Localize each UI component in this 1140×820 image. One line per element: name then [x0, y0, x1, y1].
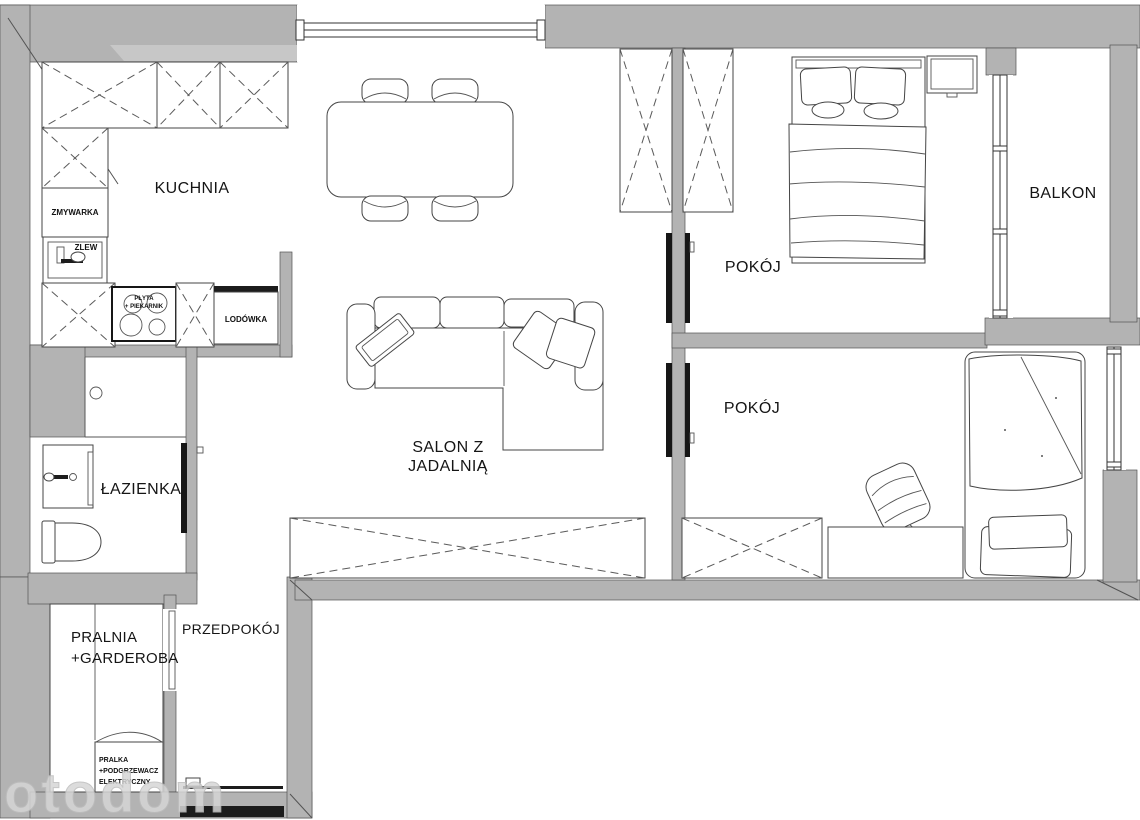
window-balcony-door: [989, 75, 1013, 318]
label-hallway: PRZEDPOKÓJ: [182, 621, 280, 637]
tv-stand: [947, 93, 957, 97]
shower-drain: [90, 387, 102, 399]
bed2-dot1: [1004, 429, 1006, 431]
corner-sofa: [347, 297, 603, 450]
dining-chair-bottom-right: [432, 196, 478, 221]
wall-right-of-fridge: [280, 252, 292, 357]
wall-bathroom-corner-block: [30, 345, 85, 437]
toilet: [42, 521, 101, 563]
label-hob-line2: + PIEKARNIK: [125, 304, 164, 310]
bed1-cushion-left: [812, 102, 844, 118]
bed1-blanket: [789, 124, 926, 259]
bed1-cushion-right: [864, 103, 898, 119]
basin-faucet-head: [44, 473, 54, 481]
dining-set: [327, 79, 513, 221]
label-bedroom1: POKÓJ: [725, 257, 781, 276]
bed1-pillow-left: [800, 67, 852, 106]
label-sink: ZLEW: [75, 243, 98, 252]
label-kitchen: KUCHNIA: [155, 180, 230, 197]
dining-chair-top-right: [432, 79, 478, 104]
bedroom2-window-tick2: [1107, 462, 1121, 467]
label-laundry-line2: +GARDEROBA: [71, 650, 179, 667]
toilet-tank: [42, 521, 55, 563]
wardrobe-living: [290, 518, 645, 578]
cabinet-x-3: [220, 62, 288, 128]
label-dishwasher: ZMYWARKA: [51, 208, 98, 217]
dining-chair-bottom-left: [362, 196, 408, 221]
wall-corridor-right: [287, 577, 312, 818]
label-salon-line2: JADALNIĄ: [408, 458, 488, 475]
cabinet-x-6: [176, 283, 214, 347]
wardrobe-bedroom2: [682, 518, 822, 578]
wardrobe-tall-right: [683, 49, 733, 212]
wall-left-upper: [0, 5, 30, 577]
bedroom1-furniture: [789, 56, 977, 263]
wall-balcony-right: [1110, 45, 1137, 322]
watermark-otodom: otodom: [4, 761, 227, 820]
wall-bedroom2-right: [1103, 470, 1137, 582]
single-bed: [965, 352, 1085, 578]
balcony-window-tick2: [993, 229, 1007, 234]
desk: [828, 527, 963, 578]
wall-top-left-shading: [110, 45, 297, 61]
bed2-pillow-inner: [988, 515, 1067, 550]
window-top: [296, 5, 545, 62]
labels: KUCHNIA SALON Z JADALNIĄ POKÓJ POKÓJ BAL…: [51, 180, 1096, 786]
fridge-handle: [214, 286, 278, 292]
cabinet-x-1: [42, 62, 157, 128]
bed2-dot2: [1041, 455, 1043, 457]
bed2-dot3: [1055, 397, 1057, 399]
cabinet-x-5: [42, 283, 115, 347]
bathroom-door-handle: [197, 447, 203, 453]
washbasin: [43, 445, 93, 508]
kitchen-cabinets: [42, 62, 288, 347]
label-bathroom: ŁAZIENKA: [101, 481, 182, 498]
bedroom1-door-handle: [690, 242, 694, 252]
bedroom2-window-tick1: [1107, 349, 1121, 354]
wall-bottom-main: [295, 580, 1140, 600]
label-balcony: BALKON: [1029, 185, 1096, 202]
balcony-window-tick3: [993, 310, 1007, 316]
wall-balcony-window-block: [986, 48, 1016, 75]
bed1-pillow-right: [854, 67, 906, 106]
dining-chair-top-left: [362, 79, 408, 104]
label-hob-line1: PŁYTA: [134, 296, 154, 302]
wardrobe-tall-left: [620, 49, 672, 212]
bedroom2-furniture: [828, 352, 1085, 578]
sofa-back-cushion-2: [440, 297, 504, 328]
label-laundry-line1: PRALNIA: [71, 629, 137, 646]
cabinet-x-2: [157, 62, 220, 128]
double-bed: [789, 57, 926, 263]
wall-bathroom-right: [186, 345, 197, 580]
window-top-cap-right: [537, 20, 545, 40]
window-top-cap-left: [296, 20, 304, 40]
wall-top-right: [545, 5, 1140, 48]
bed2-blanket: [969, 355, 1082, 490]
label-salon-line1: SALON Z: [412, 439, 483, 456]
floorplan: KUCHNIA SALON Z JADALNIĄ POKÓJ POKÓJ BAL…: [0, 0, 1140, 820]
cabinet-x-4: [42, 128, 108, 188]
wall-bedrooms-divider: [672, 333, 987, 348]
label-fridge: LODÓWKA: [225, 315, 267, 324]
label-bedroom2: POKÓJ: [724, 398, 780, 417]
floorplan-svg: KUCHNIA SALON Z JADALNIĄ POKÓJ POKÓJ BAL…: [0, 0, 1140, 820]
bedroom2-door-handle: [690, 433, 694, 443]
tv: [927, 56, 977, 97]
window-bedroom2: [1104, 347, 1126, 470]
toilet-bowl: [55, 523, 101, 561]
dining-table: [327, 102, 513, 197]
balcony-window-tick1: [993, 146, 1007, 151]
faucet-head: [71, 252, 85, 262]
